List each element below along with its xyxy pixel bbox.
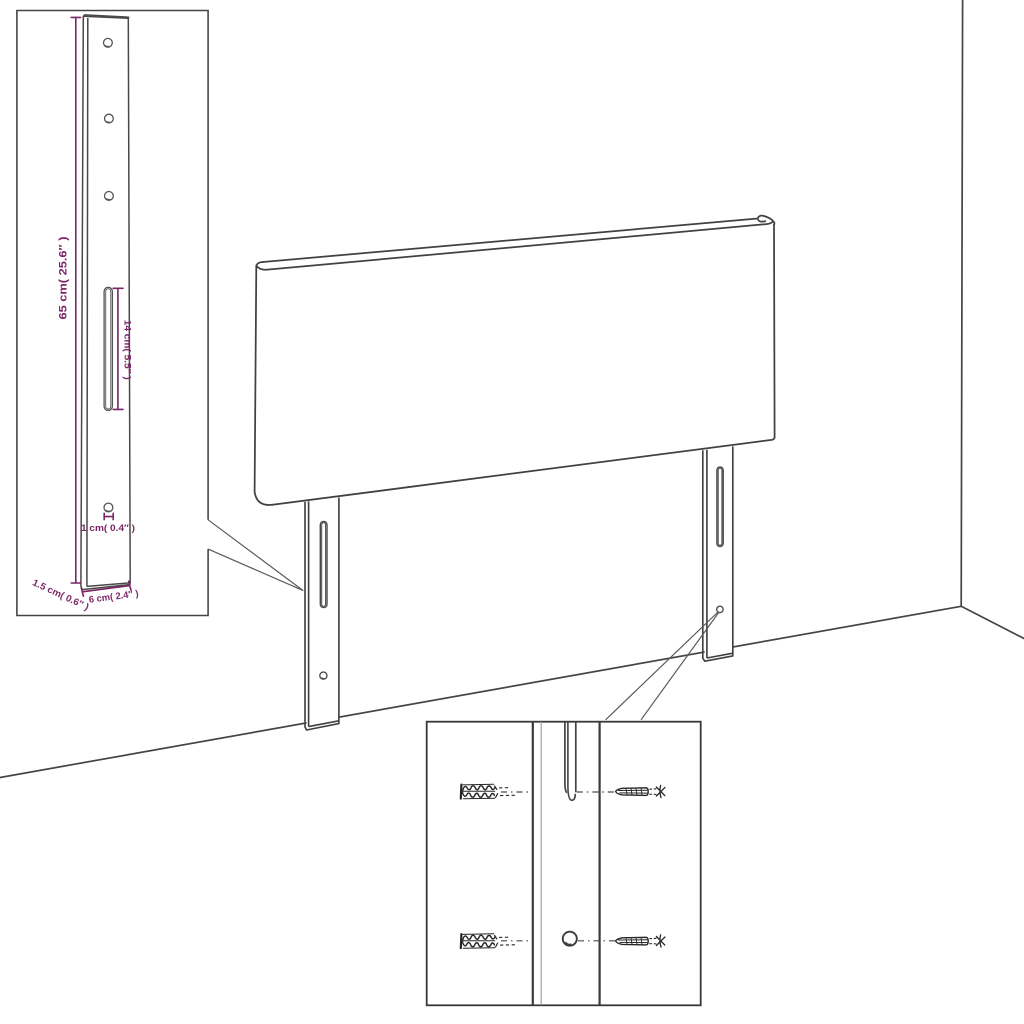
- svg-text:1 cm( 0.4″ ): 1 cm( 0.4″ ): [81, 523, 135, 533]
- svg-text:14 cm( 5.5″ ): 14 cm( 5.5″ ): [122, 320, 132, 380]
- svg-text:65 cm( 25.6″ ): 65 cm( 25.6″ ): [57, 236, 69, 319]
